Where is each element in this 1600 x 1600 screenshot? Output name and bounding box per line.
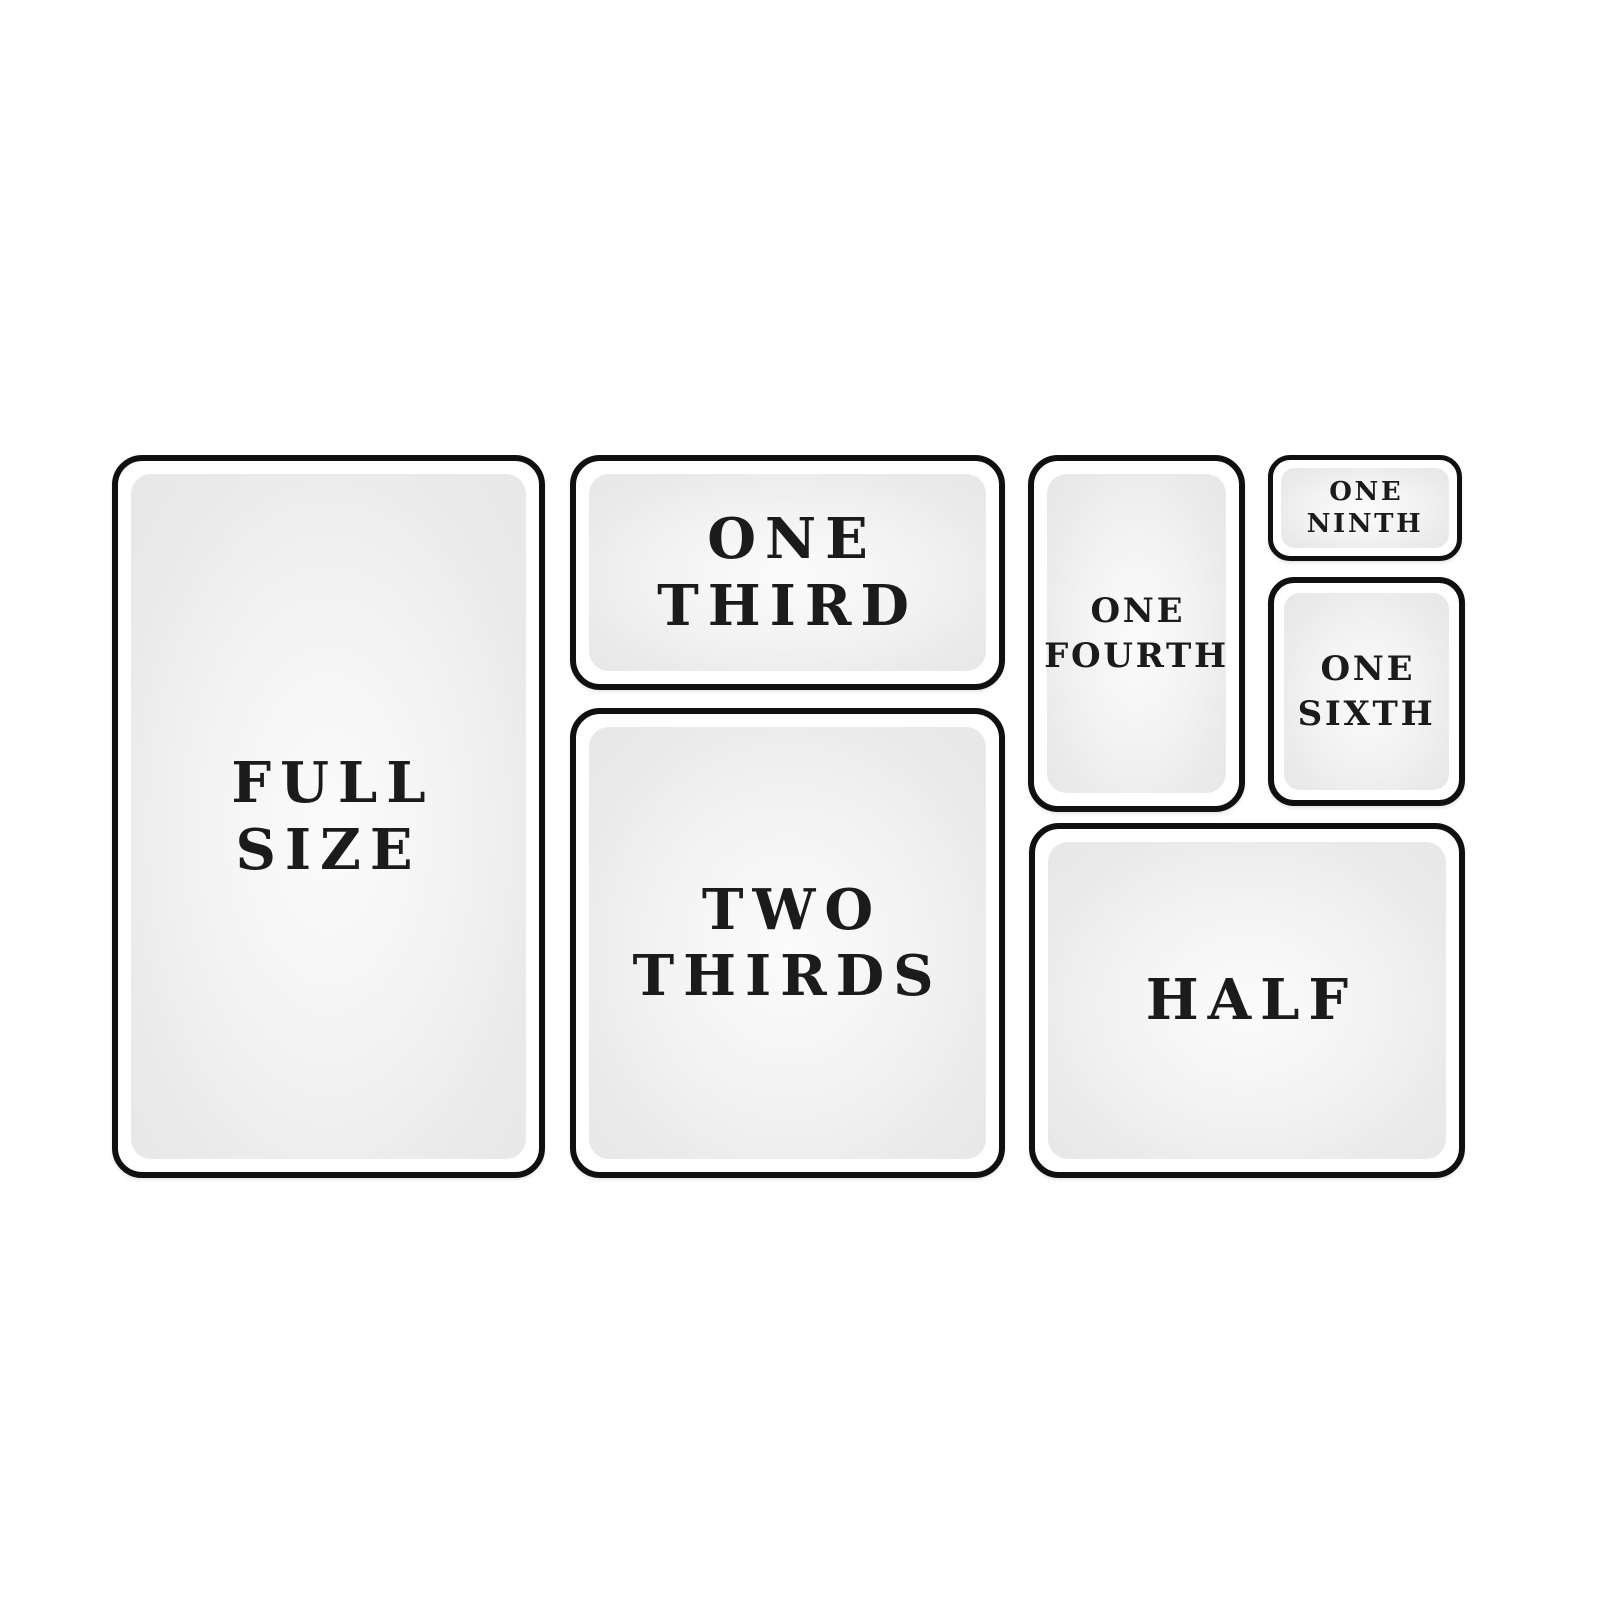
pan-half-panel: HALF bbox=[1048, 842, 1446, 1159]
pan-full-size-label: FULL SIZE bbox=[222, 750, 434, 882]
pan-one-sixth: ONE SIXTH bbox=[1268, 577, 1465, 806]
pan-one-ninth: ONE NINTH bbox=[1268, 455, 1462, 561]
pan-two-thirds-panel: TWO THIRDS bbox=[589, 727, 986, 1159]
pan-two-thirds-label: TWO THIRDS bbox=[632, 877, 942, 1009]
pan-one-fourth: ONE FOURTH bbox=[1028, 455, 1245, 812]
pan-one-third: ONE THIRD bbox=[570, 455, 1005, 690]
pan-one-sixth-panel: ONE SIXTH bbox=[1284, 593, 1449, 790]
pan-one-ninth-panel: ONE NINTH bbox=[1281, 468, 1449, 548]
pan-one-third-label: ONE THIRD bbox=[657, 506, 918, 638]
pan-one-fourth-label: ONE FOURTH bbox=[1044, 589, 1229, 677]
pan-full-size-panel: FULL SIZE bbox=[131, 474, 526, 1159]
pan-one-sixth-label: ONE SIXTH bbox=[1298, 647, 1436, 735]
pan-full-size: FULL SIZE bbox=[112, 455, 545, 1178]
pan-two-thirds: TWO THIRDS bbox=[570, 708, 1005, 1178]
pan-one-third-panel: ONE THIRD bbox=[589, 474, 986, 671]
pan-half-label: HALF bbox=[1137, 967, 1357, 1033]
pan-half: HALF bbox=[1029, 823, 1465, 1178]
pan-size-diagram: FULL SIZE ONE THIRD TWO THIRDS ONE FOURT… bbox=[0, 0, 1600, 1600]
pan-one-ninth-label: ONE NINTH bbox=[1307, 476, 1424, 541]
pan-one-fourth-panel: ONE FOURTH bbox=[1047, 474, 1226, 793]
